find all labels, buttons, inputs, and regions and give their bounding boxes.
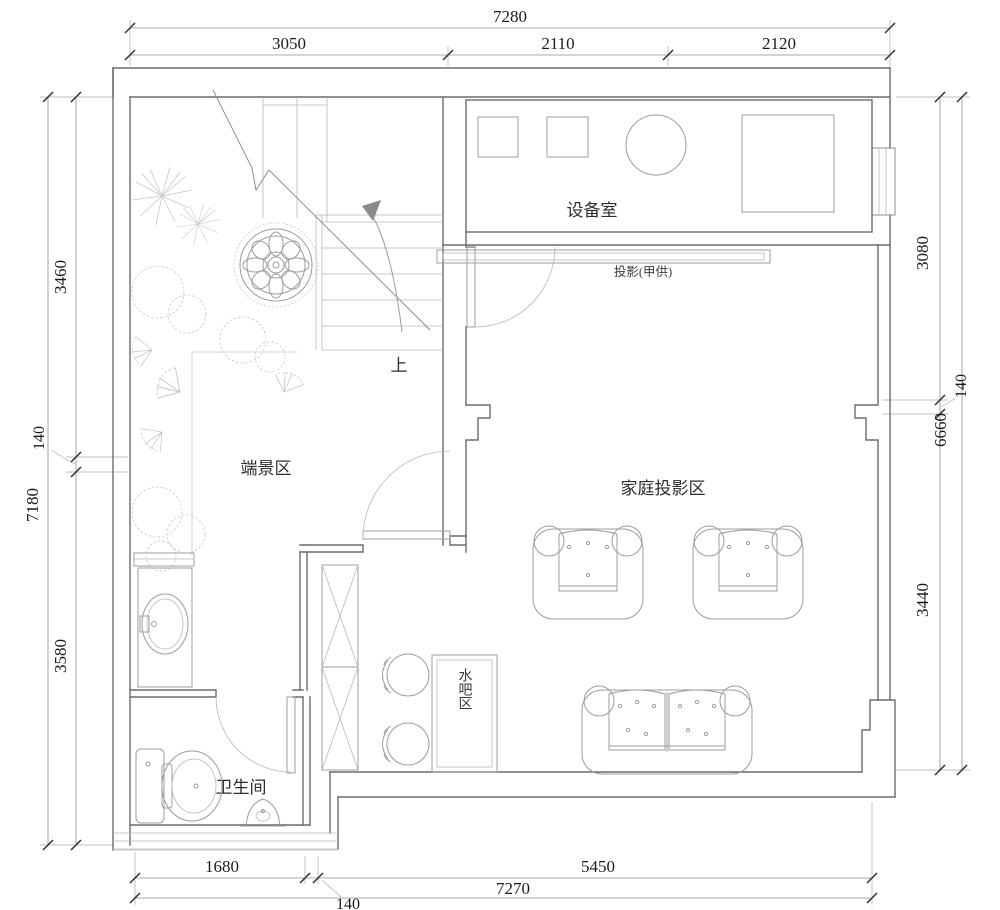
dim-top-total: 7280 [493,7,527,26]
armchair-left [533,526,643,619]
vanity [134,553,194,687]
decor-feature [234,223,318,307]
dim-bottom-seg-1: 1680 [205,857,239,876]
bar-stool-2 [383,723,430,765]
up-arrow-icon [362,200,381,221]
equipment-box-1 [478,117,518,157]
equipment-box-2 [547,117,588,157]
projector-label: 投影(甲供) [614,264,672,279]
break-line [213,90,430,330]
cabinet [322,565,358,770]
dimension-lines: 7280 3050 2110 2120 7180 3460 140 3580 3… [23,7,970,910]
floor-plan-drawing: 7280 3050 2110 2120 7180 3460 140 3580 3… [0,0,1000,910]
door-hall [363,451,450,539]
dim-left-seg-3: 3580 [51,639,70,673]
armchair-right [693,526,803,619]
equipment-room: 设备室 [478,115,834,220]
bathroom-label: 卫生间 [216,778,267,797]
dim-bottom-seg-3: 5450 [581,857,615,876]
equipment-tank [626,115,686,175]
water-bar-label: 水吧区 [457,668,473,710]
family-projection-area-label: 家庭投影区 [621,479,706,498]
dim-right-seg-1: 3080 [913,236,932,270]
dim-left-seg-2: 140 [31,426,48,450]
equipment-room-label: 设备室 [567,201,618,220]
projection-screen: 投影(甲供) [437,250,770,279]
end-view-area-label: 端景区 [241,459,292,478]
toilet [136,749,222,823]
dim-top-seg-1: 3050 [272,34,306,53]
dim-right-seg-2: 140 [953,374,970,398]
dim-right-seg-3: 3440 [913,583,932,617]
stair-direction-arc [372,215,402,332]
dim-right-total: 6660 [931,413,950,447]
walls [113,68,895,850]
dim-left-seg-1: 3460 [51,260,70,294]
stairs: 上 [213,90,443,375]
dim-left-total: 7180 [23,488,42,522]
dim-top-seg-2: 2110 [541,34,574,53]
stairs-up-label: 上 [391,356,408,375]
dim-bottom-total: 7270 [496,879,530,898]
door-bathroom [216,697,295,773]
planting-strip [131,167,306,571]
water-bar: 水吧区 [383,654,498,772]
dim-top-seg-3: 2120 [762,34,796,53]
bar-stool-1 [383,654,430,696]
door-main-room [467,247,555,327]
equipment-box-3 [742,115,834,212]
dim-bottom-seg-2: 140 [336,896,360,910]
sofa [582,686,752,774]
floor-plan: 7280 3050 2110 2120 7180 3460 140 3580 3… [0,0,1000,910]
floor-drain [240,799,286,826]
